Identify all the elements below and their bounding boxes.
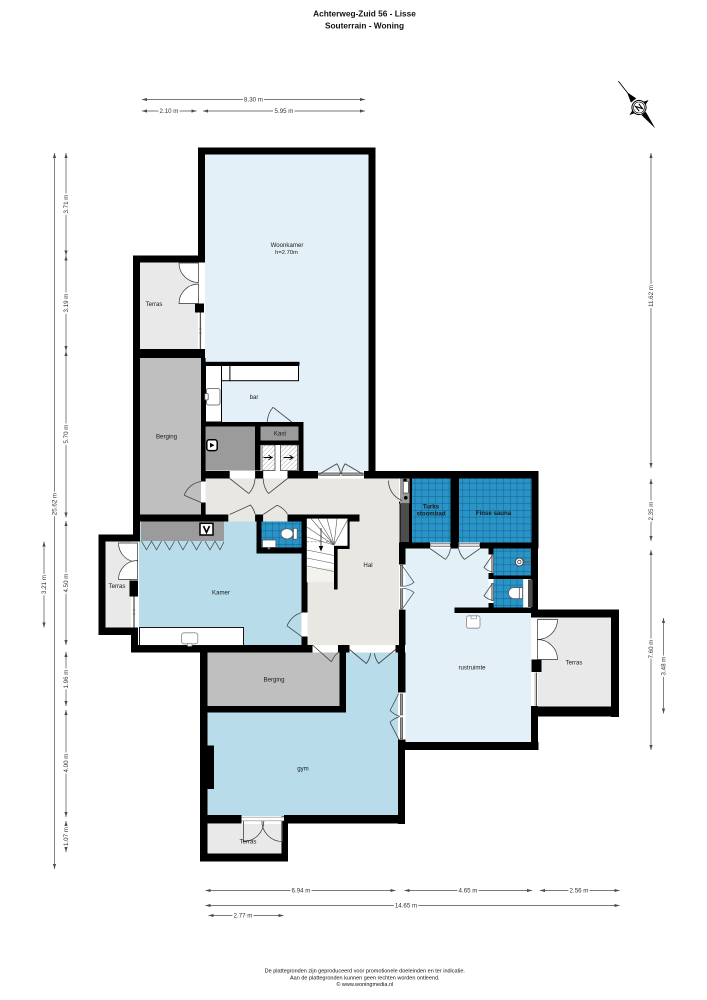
svg-text:6.94 m: 6.94 m bbox=[292, 888, 311, 895]
svg-text:Berging: Berging bbox=[263, 677, 284, 684]
svg-text:stoombad: stoombad bbox=[416, 511, 445, 518]
svg-text:2.56 m: 2.56 m bbox=[570, 888, 589, 895]
svg-text:Hal: Hal bbox=[363, 562, 372, 569]
svg-text:2.77 m: 2.77 m bbox=[234, 913, 253, 920]
svg-text:11.62 m: 11.62 m bbox=[648, 285, 655, 307]
svg-text:Finse sauna: Finse sauna bbox=[476, 510, 512, 517]
svg-text:2.35 m: 2.35 m bbox=[648, 502, 655, 521]
svg-text:Achterweg-Zuid 56 - Lisse: Achterweg-Zuid 56 - Lisse bbox=[313, 9, 416, 19]
svg-text:8.30 m: 8.30 m bbox=[244, 97, 263, 104]
svg-text:4.00 m: 4.00 m bbox=[63, 754, 70, 773]
svg-text:Terras: Terras bbox=[146, 301, 163, 308]
svg-text:1.96 m: 1.96 m bbox=[63, 670, 70, 689]
svg-text:Woonkamer: Woonkamer bbox=[271, 242, 304, 249]
svg-text:25.62 m: 25.62 m bbox=[52, 493, 59, 515]
svg-text:Terras: Terras bbox=[566, 660, 583, 667]
svg-text:14.65 m: 14.65 m bbox=[395, 903, 417, 910]
svg-text:Souterrain - Woning: Souterrain - Woning bbox=[325, 20, 404, 30]
svg-text:4.50 m: 4.50 m bbox=[63, 574, 70, 593]
svg-text:Kamer: Kamer bbox=[212, 590, 230, 597]
svg-text:3.48 m: 3.48 m bbox=[661, 657, 668, 676]
svg-text:3.71 m: 3.71 m bbox=[63, 195, 70, 214]
svg-text:2.10 m: 2.10 m bbox=[160, 108, 179, 115]
svg-text:5.95 m: 5.95 m bbox=[275, 108, 294, 115]
svg-text:h=2.70m: h=2.70m bbox=[275, 250, 298, 256]
svg-text:3.21 m: 3.21 m bbox=[41, 575, 48, 594]
svg-text:Turks: Turks bbox=[423, 504, 440, 511]
svg-text:Aan de plattegronden kunnen ge: Aan de plattegronden kunnen geen rechten… bbox=[290, 975, 440, 981]
svg-text:De plattegronden zijn geproduc: De plattegronden zijn geproduceerd voor … bbox=[265, 968, 466, 974]
svg-text:Terras: Terras bbox=[240, 839, 257, 846]
svg-text:© www.woningmedia.nl: © www.woningmedia.nl bbox=[336, 981, 393, 988]
svg-text:Terras: Terras bbox=[109, 583, 126, 590]
svg-text:gym: gym bbox=[297, 766, 309, 773]
svg-text:rustruimte: rustruimte bbox=[458, 665, 486, 672]
svg-text:7.60 m: 7.60 m bbox=[648, 640, 655, 659]
svg-text:Kast: Kast bbox=[274, 431, 287, 438]
svg-text:bar: bar bbox=[250, 394, 259, 401]
svg-text:3.19 m: 3.19 m bbox=[63, 294, 70, 313]
svg-text:5.70 m: 5.70 m bbox=[63, 425, 70, 444]
svg-text:1.07 m: 1.07 m bbox=[63, 827, 70, 846]
svg-text:Berging: Berging bbox=[156, 434, 177, 441]
svg-text:4.65 m: 4.65 m bbox=[459, 888, 478, 895]
